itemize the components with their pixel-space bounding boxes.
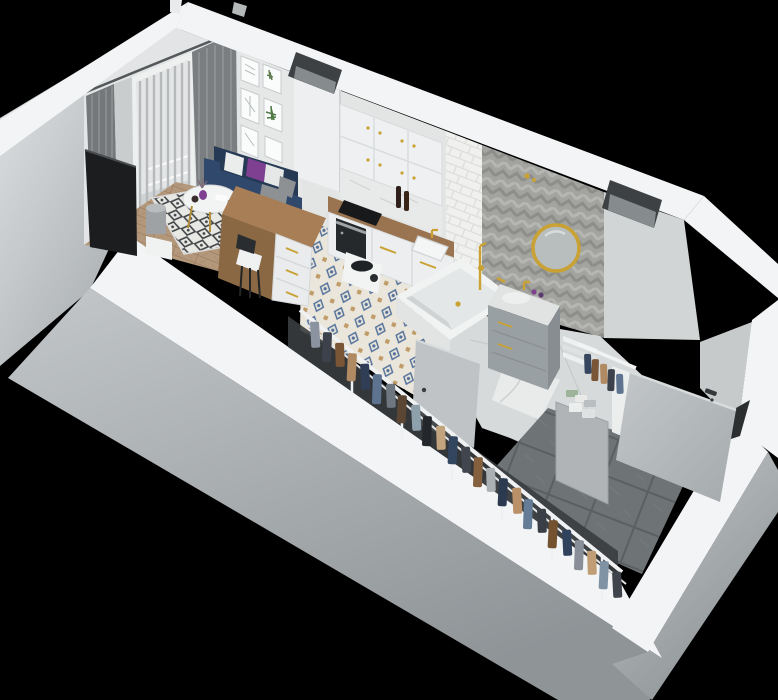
hanging-garment [498,478,508,506]
door-lock [710,398,713,401]
gold-sconce [524,173,529,178]
gold-drain [455,301,460,306]
hanging-garment [386,384,396,408]
hanging-garment [461,447,471,473]
hanging-garment [360,364,370,390]
hanging-garment [322,332,332,362]
gold-sconce [532,178,536,182]
hanging-garment [347,353,357,381]
shower-handset [478,265,484,271]
hanging-garment [537,509,547,533]
hanging-garment [422,416,432,446]
hanging-garment [372,374,382,404]
wine-bottle [404,191,409,211]
grinder [370,274,378,282]
hanging-garment [591,359,599,381]
hanging-garment [448,436,458,464]
wall-tv [85,150,137,256]
hanging-garment [548,520,558,548]
hanging-garment [587,551,597,575]
hanging-garment [616,374,624,394]
hanging-garment [607,369,615,391]
hanging-garment [562,530,572,556]
hanging-garment [473,457,483,487]
vase [199,190,207,200]
hanging-garment [600,364,608,384]
floor-lamp [146,204,166,235]
hanging-garment [599,561,609,589]
hanging-garment [612,572,622,598]
hanging-garment [574,540,584,570]
hanging-garment [397,395,407,423]
bowl [192,196,199,203]
door-handle [422,388,426,392]
machine-top-disc [351,261,373,272]
floor-plan-render: 3D isometric cutaway render of a studio … [0,0,778,700]
basin [502,292,530,304]
hanging-garment [584,354,592,374]
hanging-garment [512,488,522,514]
oven-knob [341,232,344,235]
folded-linens [569,403,582,412]
hanging-garment [523,499,533,529]
floor-plan-stage: 3D isometric cutaway render of a studio … [0,0,778,700]
tv-screen [85,150,137,256]
lamp-shade-top [146,204,166,213]
wine-bottle [396,186,401,208]
hanging-garment [335,343,345,367]
cosmetic-bottle [531,289,536,294]
hanging-garment [436,426,446,450]
folded-linens [582,409,595,418]
hanging-garment [310,322,320,348]
hanging-garment [486,468,496,492]
hanging-garment [411,405,421,431]
folded-linens [584,400,596,407]
balcony-post [170,0,182,14]
cosmetic-bottle [538,292,543,297]
